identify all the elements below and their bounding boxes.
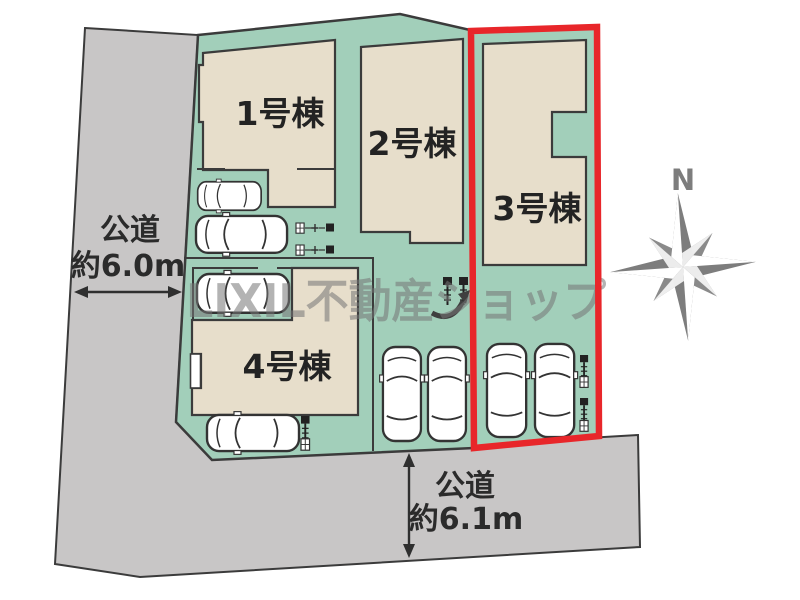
site-plan-page: 公道 約6.0m 公道 約6.1m 1号棟 2号棟 3号棟 4号棟 LIXIL不… xyxy=(0,0,800,600)
utility-pole-icon xyxy=(301,416,310,450)
building-4-label: 4号棟 xyxy=(243,347,333,386)
road-south-width: 約6.1m xyxy=(409,502,523,537)
utility-pole-icon xyxy=(580,355,588,387)
building-4-porch xyxy=(191,354,201,388)
compass-north-label: N xyxy=(671,163,695,197)
site-plan: 公道 約6.0m 公道 約6.1m 1号棟 2号棟 3号棟 4号棟 LIXIL不… xyxy=(0,0,800,600)
watermark: LIXIL不動産ショップ xyxy=(186,274,606,328)
car-icon xyxy=(198,179,261,213)
road-south-label: 公道 xyxy=(435,469,495,504)
road-west-label: 公道 xyxy=(100,213,160,248)
car-icon xyxy=(196,213,287,257)
utility-pole-icon xyxy=(580,398,588,431)
road-west-width: 約6.0m xyxy=(71,249,185,284)
car-icon xyxy=(207,412,299,455)
car-icon xyxy=(484,344,530,437)
car-icon xyxy=(425,347,470,441)
building-2-label: 2号棟 xyxy=(368,124,458,163)
building-3-label: 3号棟 xyxy=(493,189,583,228)
car-icon xyxy=(532,344,578,437)
car-icon xyxy=(380,347,425,441)
building-1-label: 1号棟 xyxy=(236,94,326,133)
compass-rose-icon xyxy=(605,188,761,346)
